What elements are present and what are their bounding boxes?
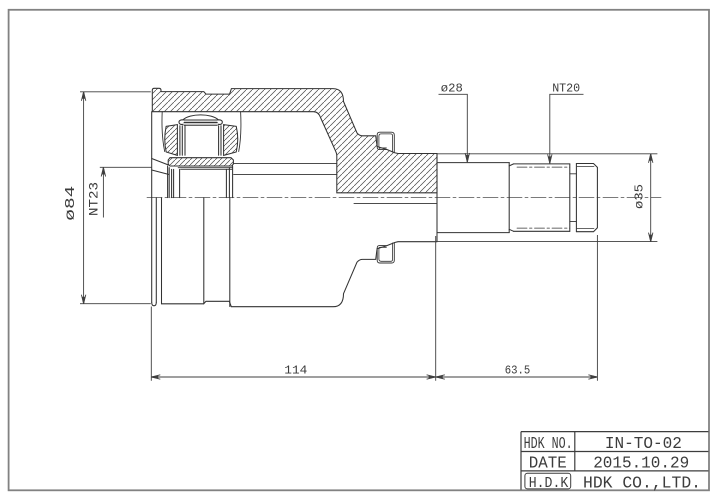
svg-text:NT20: NT20 xyxy=(552,81,580,95)
svg-text:2015.10.29: 2015.10.29 xyxy=(593,454,689,473)
svg-text:HDK NO.: HDK NO. xyxy=(524,434,573,453)
svg-text:IN-TO-02: IN-TO-02 xyxy=(605,434,682,453)
svg-text:NT23: NT23 xyxy=(88,182,102,216)
svg-text:DATE: DATE xyxy=(529,454,567,473)
svg-text:H.D.K: H.D.K xyxy=(529,476,569,492)
svg-text:ø28: ø28 xyxy=(441,81,463,95)
svg-text:ø35: ø35 xyxy=(633,184,647,209)
svg-text:63.5: 63.5 xyxy=(505,363,531,377)
svg-text:HDK CO.,LTD.: HDK CO.,LTD. xyxy=(583,474,701,493)
svg-text:ø84: ø84 xyxy=(63,186,79,221)
svg-text:114: 114 xyxy=(284,363,307,377)
